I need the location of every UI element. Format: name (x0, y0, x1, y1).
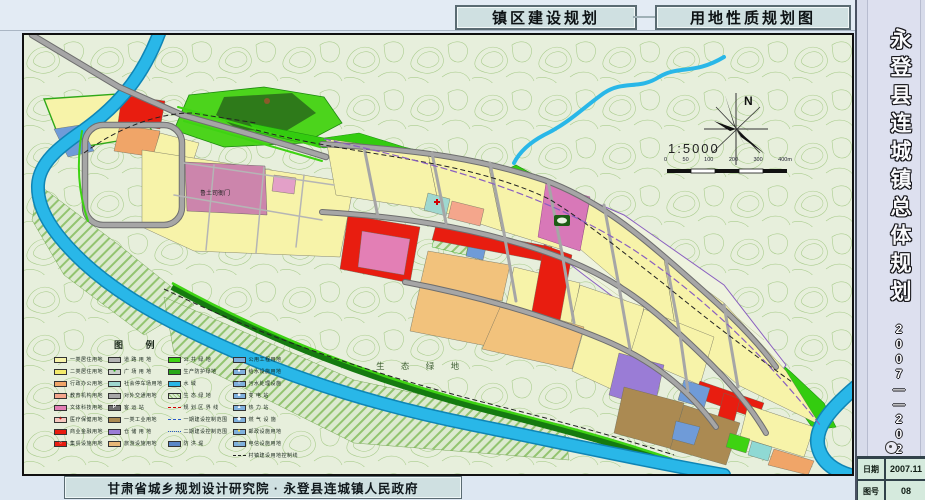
legend-item: 一类工业用地 (108, 415, 163, 424)
legend-item: ○电信设施用地 (233, 439, 299, 448)
legend-label: 水 域 (184, 380, 197, 387)
legend-swatch (108, 357, 121, 363)
legend-swatch: ● (233, 369, 246, 375)
legend-label: 防 洪 堤 (184, 440, 204, 447)
legend-swatch (233, 455, 246, 456)
plan-sheet: 镇区建设规划 用地性质规划图 (0, 0, 925, 500)
legend-label: 一类居住用地 (70, 356, 103, 363)
north-label: N (744, 94, 753, 108)
legend-swatch (108, 417, 121, 423)
legend-item: 商业金融用地 (54, 427, 103, 436)
legend-label: 电信设施用地 (249, 440, 282, 447)
legend-item: ▲热 力 站 (233, 403, 299, 412)
legend-label: 邮政设施用地 (249, 428, 282, 435)
legend-label: 一期建设控制范围 (184, 416, 228, 423)
scale-text: 1:5000 (668, 141, 720, 156)
legend-label: 道 路 用 地 (124, 356, 152, 363)
legend-item: 规 划 区 界 线 (168, 403, 228, 412)
legend-label: 仓 储 用 地 (124, 428, 152, 435)
legend-label: 对外交通用地 (124, 392, 157, 399)
legend-item: 公用工程用地 (233, 355, 299, 364)
sheet-number-value: 08 (885, 480, 925, 500)
sheet-info-table: 日期 2007.11 图号 08 (857, 456, 925, 500)
legend-swatch (168, 407, 181, 408)
legend-item: 公 共 绿 地 (168, 355, 228, 364)
legend-label: 客 运 站 (124, 404, 144, 411)
legend-item: 生产防护绿地 (168, 367, 228, 376)
legend-swatch (168, 369, 181, 375)
legend-item: 二期建设控制范围 (168, 427, 228, 436)
legend-item: ■变 电 站 (233, 391, 299, 400)
legend-label: 集贸设施用地 (70, 440, 103, 447)
sheet-number-label: 图号 (857, 480, 885, 500)
scale-tick: 200 (729, 157, 738, 163)
legend-label: 公 共 绿 地 (184, 356, 212, 363)
legend-item: 生 态 绿 地 (168, 391, 228, 400)
legend-swatch (54, 429, 67, 435)
legend-label: 医疗保健用地 (70, 416, 103, 423)
legend-item: 道 路 用 地 (108, 355, 163, 364)
legend-item: 对外交通用地 (108, 391, 163, 400)
legend-item: 仓 储 用 地 (108, 427, 163, 436)
legend-item: 一期建设控制范围 (168, 415, 228, 424)
legend-swatch (233, 357, 246, 363)
legend-item: 水 域 (168, 379, 228, 388)
scale-tick: 0 (664, 157, 667, 163)
legend-swatch: ▲ (233, 405, 246, 411)
legend-swatch: ◆ (233, 417, 246, 423)
sheet-title: 用地性质规划图 (655, 5, 851, 30)
scale-tick: 50 (683, 157, 689, 163)
scale-tick: 300 (754, 157, 763, 163)
plan-title-vertical: 永登县连城镇总体规划 (857, 28, 925, 308)
legend-title: 图 例 (114, 338, 330, 351)
legend-item: 行政办公用地 (54, 379, 103, 388)
legend-item: 防 洪 堤 (168, 439, 228, 448)
legend-swatch (54, 381, 67, 387)
legend-item: ○污水处理设施 (233, 379, 299, 388)
legend-label: 一类工业用地 (124, 416, 157, 423)
legend-label: 行政办公用地 (70, 380, 103, 387)
legend-swatch: ○ (54, 441, 67, 447)
scale-tick-labels: 050100200300400m (664, 157, 792, 163)
plan-map-frame: N 1:5000 生 态 绿 地 鲁土司衙门 图 例 一类居住用地二类居住用地行… (22, 33, 854, 476)
eco-green-label: 生 态 绿 地 (376, 361, 466, 371)
legend-swatch (54, 369, 67, 375)
legend-label: 变 电 站 (249, 392, 269, 399)
legend-label: 生产防护绿地 (184, 368, 217, 375)
legend-swatch: ■ (233, 393, 246, 399)
legend-label: 污水处理设施 (249, 380, 282, 387)
stadium-icon (554, 215, 570, 226)
legend-label: 公用工程用地 (249, 356, 282, 363)
legend-label: 规 划 区 界 线 (184, 404, 219, 411)
legend-label: 二期建设控制范围 (184, 428, 228, 435)
date-label: 日期 (857, 458, 885, 480)
legend-label: 给水设施用地 (249, 368, 282, 375)
scale-tick: 400m (778, 157, 792, 163)
legend-swatch (108, 441, 121, 447)
legend-swatch (168, 357, 181, 363)
legend-label: 生 态 绿 地 (184, 392, 212, 399)
legend-swatch (54, 357, 67, 363)
credit-box: 甘肃省城乡规划设计研究院 · 永登县连城镇人民政府 (64, 476, 462, 499)
legend-item: 文体科技用地 (54, 403, 103, 412)
legend-item: ●广 场 用 地 (108, 367, 163, 376)
legend-label: 文体科技用地 (70, 404, 103, 411)
legend-swatch (168, 393, 181, 399)
legend-item: ●邮政设施用地 (233, 427, 299, 436)
legend-item: P客 运 站 (108, 403, 163, 412)
title-connector (633, 16, 655, 18)
legend-item: ●给水设施用地 (233, 367, 299, 376)
series-title: 镇区建设规划 (455, 5, 637, 30)
legend-swatch: ● (233, 429, 246, 435)
legend-swatch (54, 405, 67, 411)
legend-item: +医疗保健用地 (54, 415, 103, 424)
legend-columns: 一类居住用地二类居住用地行政办公用地教育机构用地文体科技用地+医疗保健用地商业金… (54, 355, 330, 460)
legend-item: 社会停车场用地 (108, 379, 163, 388)
legend-swatch (54, 393, 67, 399)
legend-swatch (168, 441, 181, 447)
legend-item: ◆燃 气 设 施 (233, 415, 299, 424)
legend-swatch (108, 429, 121, 435)
legend-swatch (168, 381, 181, 387)
agency-logo (885, 441, 898, 454)
legend-item: 村镇建设用地控制线 (233, 451, 299, 460)
sheet-header: 镇区建设规划 用地性质规划图 (0, 0, 855, 31)
title-block-sidebar: 永登县连城镇总体规划 2007——2020 日期 2007.11 图号 08 (855, 0, 925, 500)
legend-label: 商业金融用地 (70, 428, 103, 435)
legend-swatch: + (54, 417, 67, 423)
legend-label: 热 力 站 (249, 404, 269, 411)
legend-label: 二类居住用地 (70, 368, 103, 375)
legend-swatch (108, 381, 121, 387)
legend-swatch: ○ (233, 441, 246, 447)
legend-label: 教育机构用地 (70, 392, 103, 399)
legend-swatch (168, 419, 181, 420)
legend-swatch (168, 431, 181, 432)
date-value: 2007.11 (885, 458, 925, 480)
legend-item: 旅游设施用地 (108, 439, 163, 448)
legend-label: 广 场 用 地 (124, 368, 152, 375)
legend-item: 二类居住用地 (54, 367, 103, 376)
legend-swatch: ● (108, 369, 121, 375)
temple-icon (264, 98, 270, 104)
scale-tick: 100 (704, 157, 713, 163)
legend: 图 例 一类居住用地二类居住用地行政办公用地教育机构用地文体科技用地+医疗保健用… (54, 338, 330, 460)
legend-swatch: ○ (233, 381, 246, 387)
legend-item: 教育机构用地 (54, 391, 103, 400)
legend-swatch: P (108, 405, 121, 411)
legend-item: ○集贸设施用地 (54, 439, 103, 448)
legend-label: 燃 气 设 施 (249, 416, 277, 423)
legend-label: 社会停车场用地 (124, 380, 163, 387)
legend-label: 村镇建设用地控制线 (249, 452, 299, 459)
legend-item: 一类居住用地 (54, 355, 103, 364)
heritage-site-label: 鲁土司衙门 (200, 189, 230, 197)
legend-swatch (108, 393, 121, 399)
legend-label: 旅游设施用地 (124, 440, 157, 447)
